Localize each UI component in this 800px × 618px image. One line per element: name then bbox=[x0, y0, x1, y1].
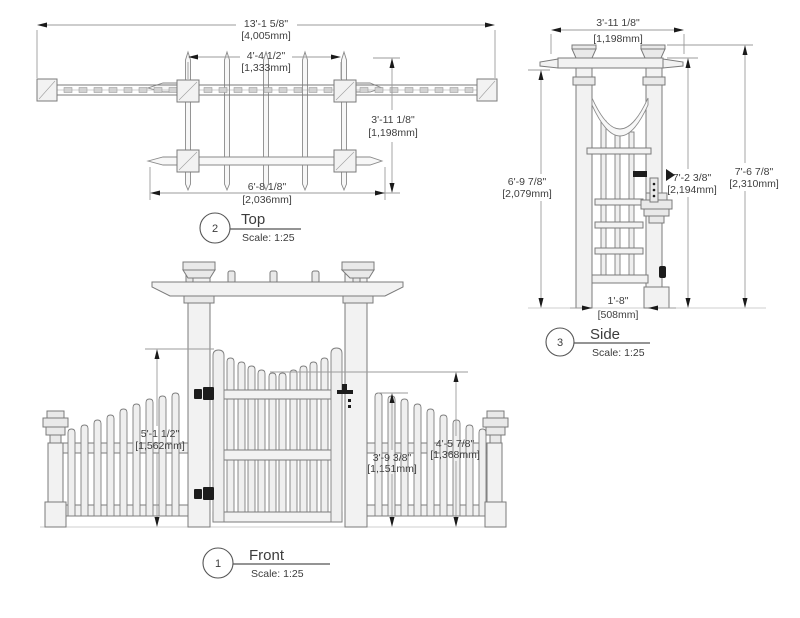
dim-label: 7'-6 7/8" bbox=[735, 166, 774, 178]
dim-label-metric: [2,079mm] bbox=[502, 188, 552, 200]
post-collar-right bbox=[343, 296, 373, 303]
dim-label: 6'-9 7/8" bbox=[508, 176, 547, 188]
view-side: 3'-11 1/8" [1,198mm] 6'-9 7/8" [2,079mm]… bbox=[502, 17, 779, 359]
dim-label-metric: [1,368mm] bbox=[430, 449, 480, 461]
top-fence-pickets bbox=[64, 88, 473, 93]
dim-side-post-height: 6'-9 7/8" [2,079mm] bbox=[502, 70, 552, 308]
side-fence-post-base bbox=[644, 287, 669, 308]
view-label-top: 2 Top Scale: 1:25 bbox=[200, 211, 301, 244]
post-collar-left bbox=[184, 296, 214, 303]
view-top: 13'-1 5/8" [4,005mm] 4'-4 1/2" [1,333mm]… bbox=[37, 18, 497, 244]
view-number: 3 bbox=[557, 337, 563, 349]
trellis-rung-wide bbox=[587, 148, 651, 154]
dim-label-metric: [1,198mm] bbox=[593, 33, 643, 45]
dim-label: 1'-8" bbox=[608, 295, 629, 307]
view-label-side: 3 Side Scale: 1:25 bbox=[546, 326, 650, 359]
view-label-front: 1 Front Scale: 1:25 bbox=[203, 547, 330, 580]
dim-label: 6'-8 1/8" bbox=[248, 181, 287, 193]
dim-label-metric: [1,198mm] bbox=[368, 127, 418, 139]
trellis-arch bbox=[592, 98, 648, 136]
trellis-rung bbox=[595, 222, 643, 228]
front-gate bbox=[194, 348, 353, 522]
view-number: 2 bbox=[212, 223, 218, 235]
dim-label-metric: [1,562mm] bbox=[135, 440, 185, 452]
arbor-beam bbox=[152, 282, 403, 296]
dim-top-depth: 3'-11 1/8" [1,198mm] bbox=[368, 58, 418, 193]
side-post-cap-back bbox=[641, 45, 665, 58]
gate-rail-bottom bbox=[213, 512, 342, 522]
gate-pickets bbox=[227, 358, 328, 518]
gate-stile-left bbox=[213, 350, 224, 522]
front-left-fence-wing bbox=[43, 393, 188, 527]
side-post-cap-front bbox=[572, 45, 596, 58]
wing-pickets bbox=[68, 393, 179, 516]
dim-label: 5'-1 1/2" bbox=[141, 428, 180, 440]
view-title: Top bbox=[241, 211, 265, 228]
view-title: Side bbox=[590, 326, 620, 343]
dim-label-metric: [2,036mm] bbox=[242, 194, 292, 206]
dim-label-metric: [508mm] bbox=[598, 309, 639, 321]
trellis-bottom-rail bbox=[592, 275, 648, 283]
dim-label-metric: [2,194mm] bbox=[667, 184, 717, 196]
dim-label: 7'-2 3/8" bbox=[673, 172, 712, 184]
gate-stile-right bbox=[331, 348, 342, 522]
drawing-sheet: 13'-1 5/8" [4,005mm] 4'-4 1/2" [1,333mm]… bbox=[0, 0, 800, 618]
side-hinge-clip bbox=[659, 266, 666, 278]
trellis-rung bbox=[595, 199, 643, 205]
view-scale: Scale: 1:25 bbox=[592, 347, 645, 359]
dim-side-beam-top-height: 7'-2 3/8" [2,194mm] bbox=[667, 58, 717, 308]
side-trellis bbox=[587, 98, 651, 283]
dim-label-metric: [1,151mm] bbox=[367, 463, 417, 475]
gate-rail-middle bbox=[213, 450, 342, 460]
dim-label: 3'-11 1/8" bbox=[596, 17, 640, 29]
dim-label-metric: [4,005mm] bbox=[241, 30, 291, 42]
side-structure bbox=[540, 45, 683, 308]
post-collar-back bbox=[643, 77, 665, 85]
view-scale: Scale: 1:25 bbox=[251, 568, 304, 580]
dim-label: 13'-1 5/8" bbox=[244, 18, 289, 30]
view-scale: Scale: 1:25 bbox=[242, 232, 295, 244]
post-cap-left bbox=[183, 262, 215, 278]
end-post bbox=[483, 411, 508, 527]
dim-label: 4'-4 1/2" bbox=[247, 50, 286, 62]
gate-rail-top bbox=[213, 390, 342, 399]
end-post bbox=[43, 411, 68, 527]
view-number: 1 bbox=[215, 558, 221, 570]
post-collar-front bbox=[573, 77, 595, 85]
technical-drawing: 13'-1 5/8" [4,005mm] 4'-4 1/2" [1,333mm]… bbox=[0, 0, 800, 618]
trellis-rung bbox=[595, 248, 643, 254]
view-title: Front bbox=[249, 547, 285, 564]
dim-label-metric: [2,310mm] bbox=[729, 178, 779, 190]
side-post-front bbox=[576, 68, 592, 308]
side-beam bbox=[540, 58, 683, 68]
dim-label-metric: [1,333mm] bbox=[241, 62, 291, 74]
arbor-post-right bbox=[345, 270, 367, 527]
view-front: 5'-1 1/2" [1,562mm] 3'-9 3/8" [1,151mm] … bbox=[40, 262, 508, 580]
dim-label: 3'-11 1/8" bbox=[371, 114, 415, 126]
